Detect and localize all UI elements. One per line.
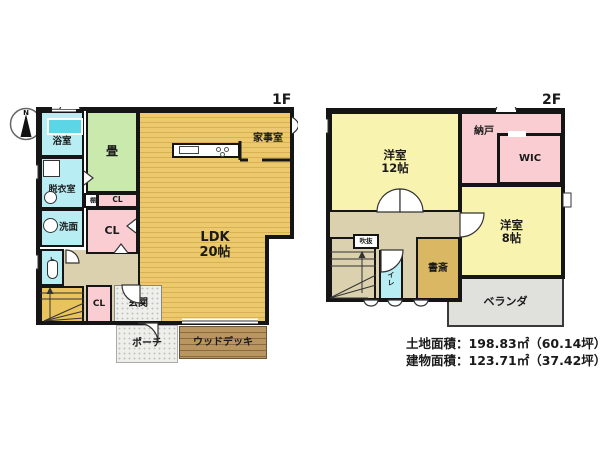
floor2-label: 2F xyxy=(542,92,561,108)
stove-burner-icon xyxy=(220,152,225,157)
room-entrance: 玄関 xyxy=(114,285,162,323)
room-study: 書斎 xyxy=(416,237,460,300)
sink-icon xyxy=(43,218,58,233)
floor1-plan: LDK 20帖 家事室 浴室 脱衣室 洗面 xyxy=(36,107,298,367)
bathtub-icon xyxy=(47,118,83,135)
closet-middle: CL xyxy=(86,208,138,254)
ldk-label: LDK 20帖 xyxy=(199,231,230,261)
room-toilet-2f: トイレ xyxy=(379,250,403,300)
veranda: ベランダ xyxy=(447,277,564,327)
room-wic: WIC xyxy=(497,133,563,185)
wood-deck: ウッドデッキ xyxy=(179,326,267,359)
closet-upper: CL xyxy=(97,193,138,208)
floor2-plan: ベランダ 洋室 12帖 納戸 WIC 洋室 8帖 吹抜 xyxy=(326,107,574,333)
sink-icon xyxy=(44,191,57,204)
kitchen-sink-icon xyxy=(179,146,199,154)
stairs-1f xyxy=(40,286,84,323)
closet-lower: CL xyxy=(86,285,112,323)
building-area-text: 建物面積：123.71㎡（37.42坪） xyxy=(406,353,600,370)
floor-plan-page: N 1F 2F LDK 20帖 家事室 浴室 xyxy=(0,0,600,450)
washing-machine-icon xyxy=(43,160,60,177)
stove-burner-icon xyxy=(216,147,221,152)
room-tatami: 畳 xyxy=(86,111,138,193)
ldk-notch xyxy=(267,237,294,325)
kitchen-counter-icon xyxy=(172,143,240,158)
toilet-icon xyxy=(47,260,58,279)
room-western-8: 洋室 8帖 xyxy=(460,185,563,279)
stove-burner-icon xyxy=(224,147,229,152)
shelf: 棚 xyxy=(84,193,98,208)
floor1-label: 1F xyxy=(272,92,291,108)
void-label-box: 吹抜 xyxy=(353,234,379,249)
land-area-text: 土地面積：198.83㎡（60.14坪） xyxy=(406,336,600,353)
area-info: 土地面積：198.83㎡（60.14坪） 建物面積：123.71㎡（37.42坪… xyxy=(406,336,600,370)
porch: ポーチ xyxy=(116,325,178,363)
room-western-12: 洋室 12帖 xyxy=(330,112,460,212)
room-utility-label: 家事室 xyxy=(244,129,292,144)
